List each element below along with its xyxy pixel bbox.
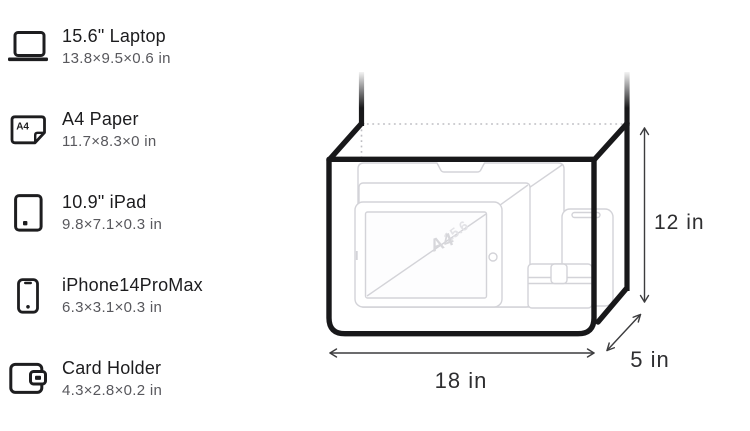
bag-top-dotted-edges [362, 124, 628, 157]
height-dimension-label: 12 in [654, 211, 705, 234]
height-arrow [641, 128, 649, 302]
width-arrow [330, 349, 594, 357]
depth-dimension-label: 5 in [630, 347, 669, 372]
wireframe-card-holder [528, 264, 592, 308]
bag-contents-wireframe [355, 163, 613, 308]
wireframe-ipad [355, 202, 502, 307]
bag-diagram: 15.6 A4 12 in 18 in 5 in [0, 0, 750, 426]
width-dimension-label: 18 in [435, 368, 488, 393]
bag-top-left-edge [329, 124, 362, 161]
bag-top-right-edge [594, 124, 627, 161]
